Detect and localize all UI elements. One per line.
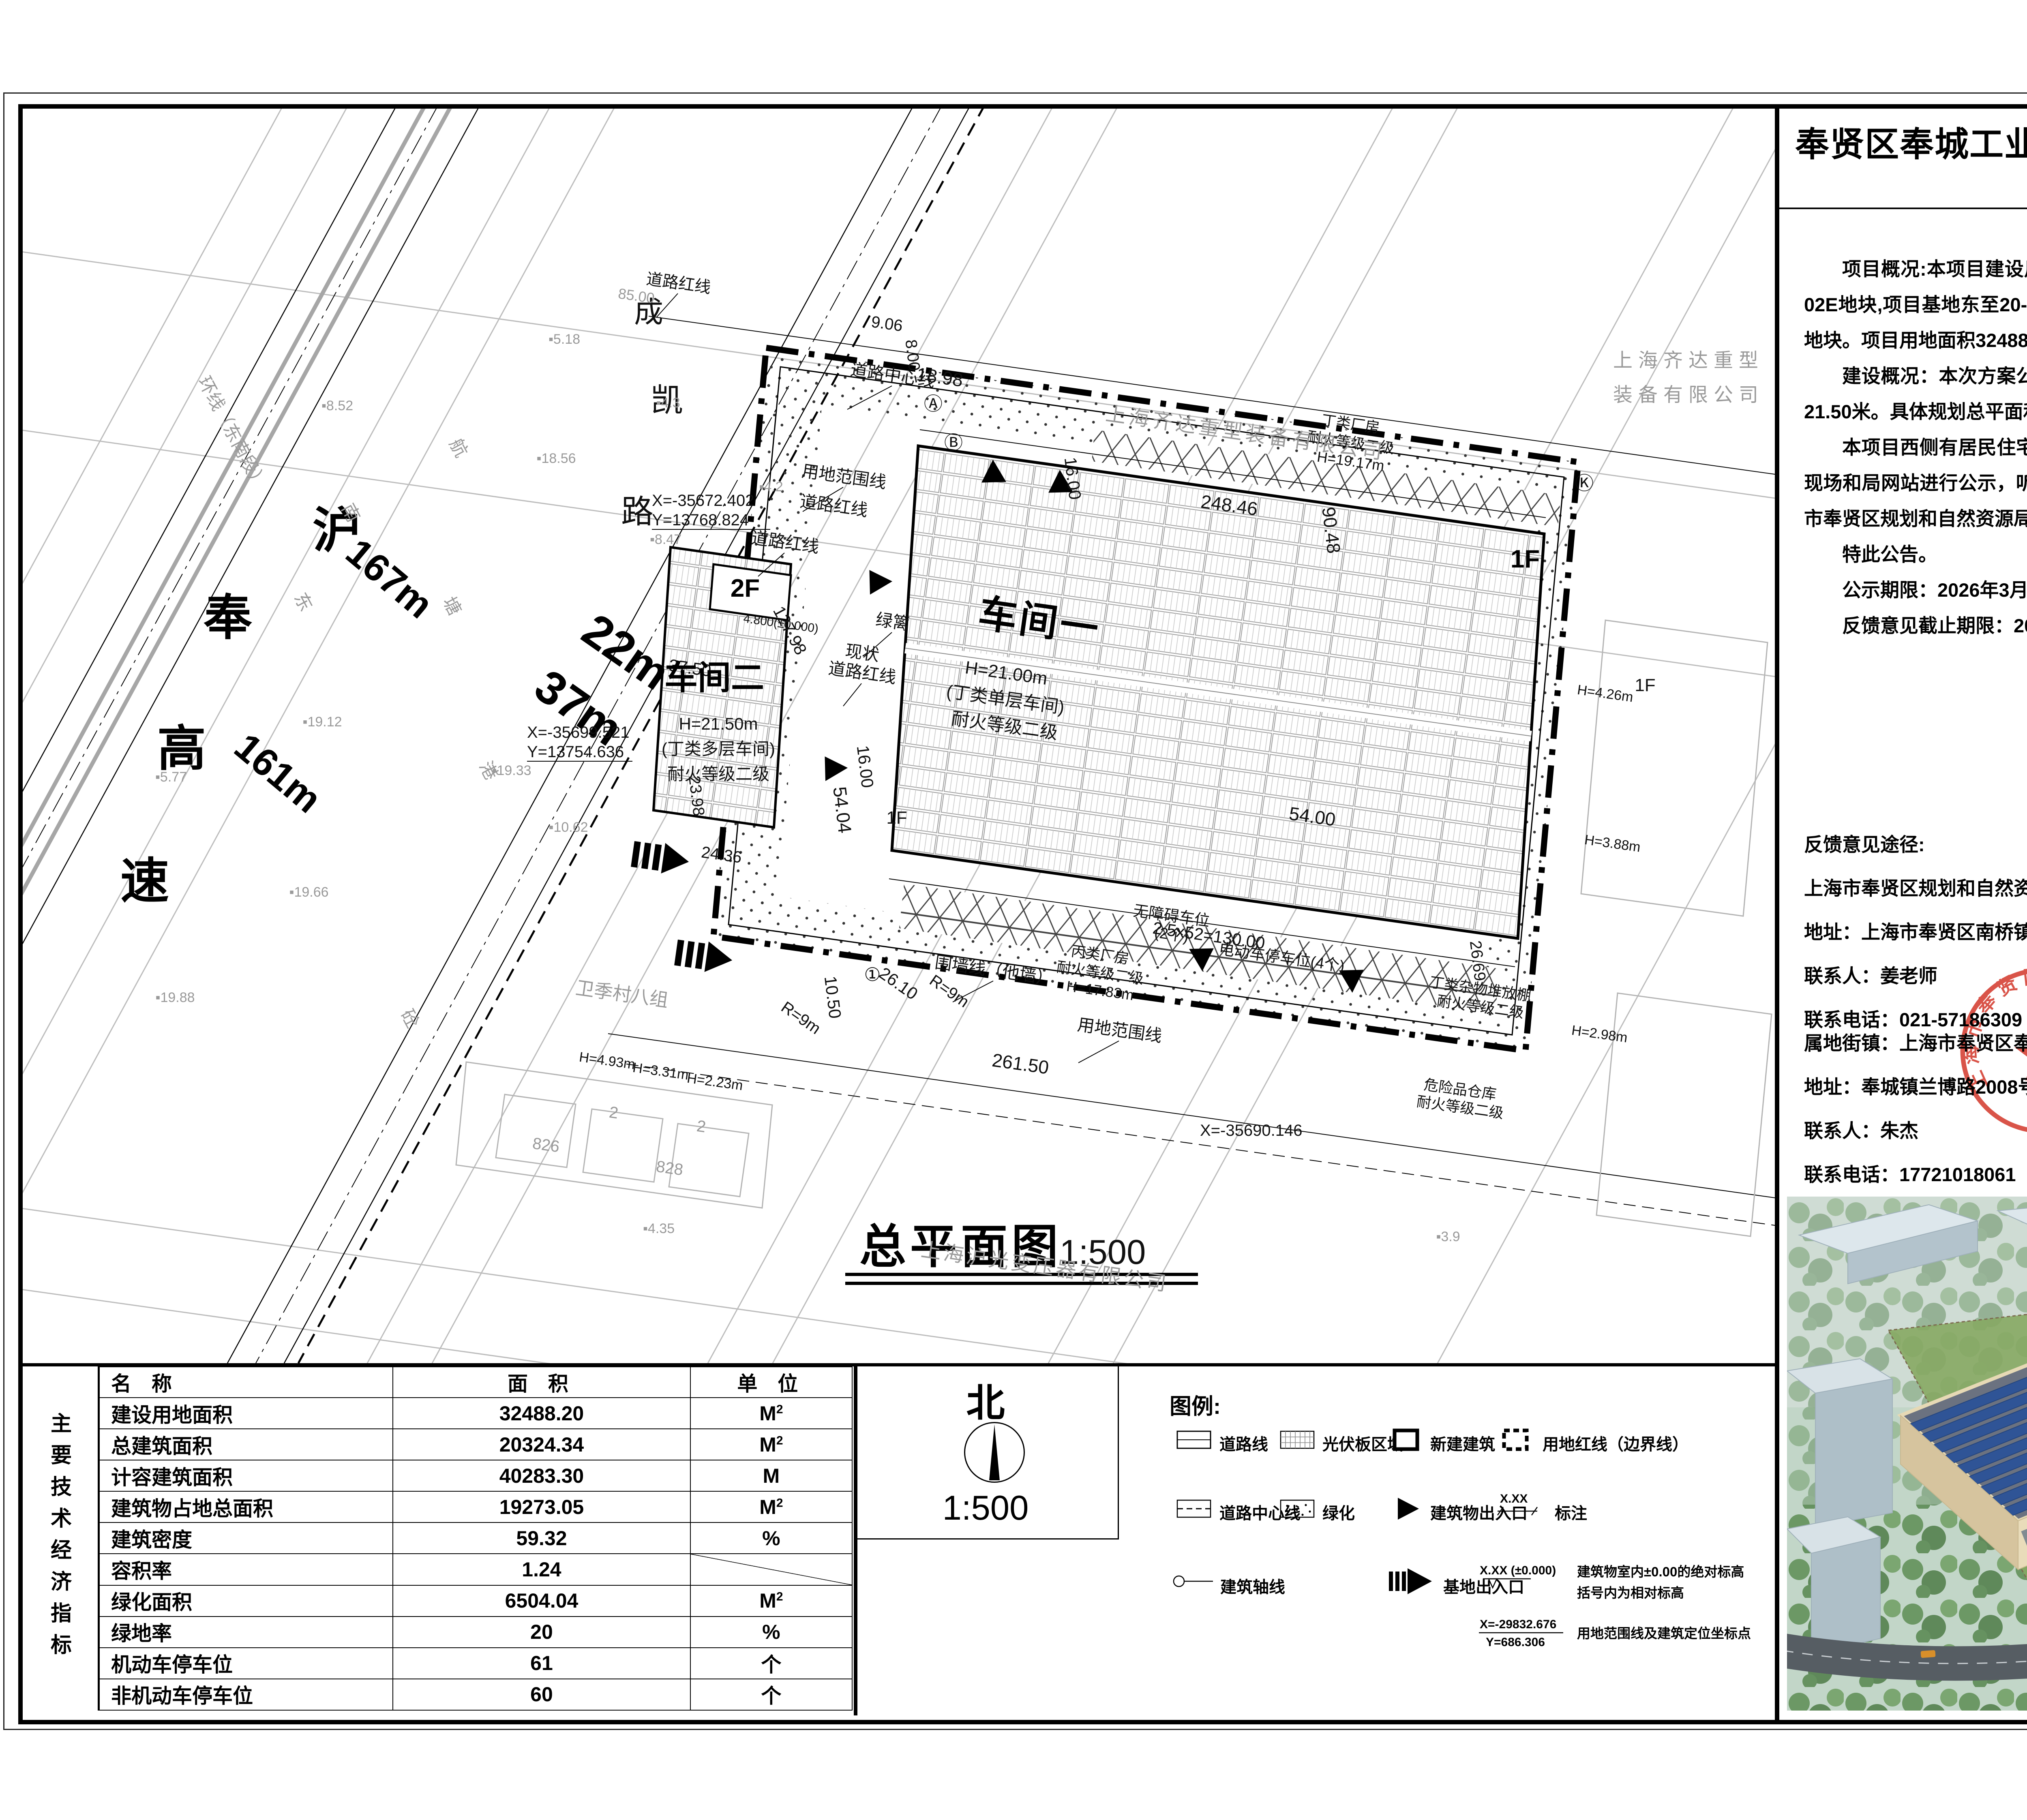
plan-label: 2 — [696, 1117, 707, 1136]
dim-symbol-icon — [1495, 1504, 1540, 1518]
compass-cell-bottomline — [854, 1538, 1119, 1540]
plan-label: X=-35690.146 — [1200, 1122, 1302, 1139]
paragraph-construction: 建设概况：本次方案公示单体为两栋厂房，分别为车间一及车间二。最高单体高度21.5… — [1804, 358, 2027, 430]
legend-note1b: 括号内为相对标高 — [1577, 1582, 1684, 1602]
table-row: 机动车停车位61个 — [99, 1648, 852, 1679]
plan-label: H=2.98m — [1571, 1023, 1628, 1046]
table-row: 绿地率20% — [99, 1617, 852, 1648]
plan-label: ▪19.66 — [289, 884, 328, 900]
plan-label: ▪5.77 — [155, 769, 187, 785]
plan-label: Y=13754.636 — [527, 743, 624, 761]
table-cell: 59.32 — [393, 1522, 690, 1554]
legend-heading: 图例: — [1170, 1388, 1221, 1420]
plan-label: 用地范围线 — [1076, 1015, 1163, 1046]
table-cell: 20 — [393, 1617, 690, 1648]
plan-label: R=9m — [926, 971, 973, 1011]
table-cell: M2 — [690, 1585, 852, 1617]
table-header-row: 名 称 面 积 单 位 — [99, 1367, 852, 1398]
issuing-authority: 上海市奉贤区规划和自然资源局 二零二六年三月十九日 — [1804, 706, 2027, 794]
plan-label: 速 — [120, 854, 169, 908]
page-title-line1: 奉贤区奉城工业园区南区FXS2-0103单元20-02E地块建设项目 — [1788, 122, 2027, 212]
announcement-body: 项目概况:本项目建设用地位于上海市奉贤区奉城工业园区南区FXS2-0103单元2… — [1804, 251, 2027, 644]
feedback-address: 地址：上海市奉贤区南桥镇南亭公路1号房地大厦 — [1804, 910, 2027, 954]
plan-label: 奉 — [204, 591, 253, 645]
plan-label: 航 — [446, 435, 471, 460]
plan-label: ▪18.56 — [536, 451, 576, 466]
plan-label: ▪4.3 — [656, 395, 680, 411]
plan-label: 16.00 — [853, 744, 877, 789]
table-cell: M2 — [690, 1398, 852, 1429]
table-cell: 绿地率 — [99, 1617, 393, 1648]
plan-label: 砼 — [397, 1006, 423, 1031]
elevation-symbol: X.XX (±0.000) — [1480, 1564, 1556, 1578]
plan-label: 卫季村八组 — [574, 977, 670, 1011]
table-row: 总建筑面积20324.34M2 — [99, 1429, 852, 1460]
paragraph-notice: 特此公告。 — [1804, 537, 2027, 572]
axis-line-icon — [1171, 1571, 1215, 1592]
north-arrow-icon — [964, 1422, 1025, 1483]
new-building-icon — [1391, 1427, 1423, 1452]
table-cell: 60 — [393, 1679, 690, 1710]
plan-label: 1F — [1635, 675, 1655, 695]
dim-symbol: X.XX — [1500, 1492, 1528, 1506]
plan-label: 绿篱 — [874, 610, 911, 634]
official-stamp-town-government: 上海市奉贤区奉城镇人民政府 — [1956, 964, 2027, 1138]
plan-label: 161m — [226, 725, 329, 821]
feedback-heading: 反馈意见途径: — [1804, 823, 2027, 867]
plan-label: 10.50 — [821, 975, 845, 1019]
plan-label: ▪8.47 — [650, 532, 681, 547]
compass-scale-label: 1:500 — [854, 1488, 1117, 1528]
plan-label: ▪19.88 — [155, 990, 195, 1005]
table-cell: 绿化面积 — [99, 1585, 393, 1617]
legend-axis-label: 建筑轴线 — [1220, 1574, 1285, 1597]
plan-label: 54.04 — [829, 786, 856, 835]
site-plan-drawing: 总平面图1:500沪167m奉高161m速成凯路22m37m248.46261.… — [23, 109, 1775, 1363]
plan-label: 261.50 — [991, 1049, 1050, 1078]
paragraph-overview: 项目概况:本项目建设用地位于上海市奉贤区奉城工业园区南区FXS2-0103单元2… — [1804, 251, 2027, 358]
plan-label: 826 — [531, 1135, 561, 1156]
plan-label: H=2.23m — [686, 1071, 744, 1094]
plan-label: (丁类多层车间) — [662, 739, 775, 758]
table-cell: 总建筑面积 — [99, 1429, 393, 1460]
legend-dim-label: 标注 — [1555, 1500, 1587, 1524]
plan-label: 耐火等级二级 — [667, 764, 769, 784]
plan-label: ▪3.9 — [1436, 1229, 1460, 1244]
table-cell: M — [690, 1460, 852, 1491]
table-cell: M2 — [690, 1491, 852, 1522]
table-cell: 建筑密度 — [99, 1522, 393, 1554]
plan-label: 道路红线 — [827, 659, 898, 687]
plan-label: H=21.50m — [679, 714, 758, 733]
plan-label: 26.10 — [876, 964, 921, 1004]
table-cell: 1.24 — [393, 1554, 690, 1585]
pv-area-icon — [1279, 1428, 1316, 1452]
table-cell: % — [690, 1522, 852, 1554]
plan-label: 1F — [1511, 545, 1540, 573]
project-3d-rendering — [1787, 1197, 2027, 1711]
legend-redline-label: 用地红线（边界线） — [1543, 1431, 1688, 1455]
plan-label: Y=13768.824 — [652, 511, 749, 529]
plan-label: 828 — [655, 1158, 684, 1179]
plan-label: ▪5.18 — [549, 332, 580, 347]
table-row: 绿化面积6504.04M2 — [99, 1585, 852, 1617]
feedback-deadline: 反馈意见截止期限：2026年4月4日 — [1804, 608, 2027, 644]
plan-label: X=-35672.402 — [652, 492, 754, 510]
table-cell: 计容建筑面积 — [99, 1460, 393, 1491]
plan-label: ▪4.35 — [643, 1221, 675, 1236]
legend-road-label: 道路线 — [1219, 1431, 1268, 1455]
paragraph-publicity: 本项目西侧有居民住宅，现根据《上海市建设工程设计方案规划公示规定》在基地现场和局… — [1804, 430, 2027, 537]
table-cell: 20324.34 — [393, 1429, 690, 1460]
plan-label: 路 — [621, 494, 654, 530]
table-cell: 40283.30 — [393, 1460, 690, 1491]
legend-note1a: 建筑物室内±0.00的绝对标高 — [1577, 1561, 1744, 1580]
plan-label: 车间二 — [664, 659, 764, 696]
plan-label: H=3.31m — [632, 1060, 690, 1083]
building-entrance-icon — [1394, 1495, 1422, 1522]
plan-label: X=-35699.521 — [527, 724, 629, 741]
publicity-period: 公示期限：2026年3月19日至2026年3月28日 — [1804, 572, 2027, 608]
redline-icon — [1500, 1427, 1532, 1452]
table-cell: 个 — [690, 1679, 852, 1710]
plan-label: 塘 — [439, 593, 465, 619]
table-cell: % — [690, 1617, 852, 1648]
township-phone: 联系电话：17721018061 — [1804, 1153, 2027, 1197]
table-cell: 个 — [690, 1648, 852, 1679]
plan-label: 167m — [338, 531, 441, 627]
table-cell: M2 — [690, 1429, 852, 1460]
table-row: 建筑密度59.32% — [99, 1522, 852, 1554]
plan-label: 上海齐达重型 — [1613, 350, 1764, 371]
plan-label: Ⓚ — [1575, 473, 1594, 494]
plan-label: ① — [864, 964, 881, 985]
feedback-org: 上海市奉贤区规划和自然资源局 — [1804, 867, 2027, 910]
table-cell: 32488.20 — [393, 1398, 690, 1429]
greenery-icon — [1279, 1497, 1316, 1520]
panel-divider — [1775, 104, 1779, 1720]
announcement-sheet: { "colors":{"stamp_red":"#d43c2f","solar… — [0, 0, 2027, 1820]
plan-label: 装备有限公司 — [1613, 384, 1764, 406]
coord-symbol-y: Y=686.306 — [1486, 1636, 1545, 1649]
stamp2-text: 上海市奉贤区奉城镇人民政府 — [1956, 964, 2027, 1105]
elevation-symbol-icon — [1483, 1577, 1532, 1593]
plan-label: ▪19.33 — [492, 763, 531, 778]
table-cell: 容积率 — [99, 1554, 393, 1585]
authority-name: 上海市奉贤区规划和自然资源局 — [1804, 706, 2027, 750]
plan-label: R=9m — [778, 998, 824, 1038]
plan-label: H=4.26m — [1576, 682, 1634, 705]
indicator-side-label: 主要技术经济指标 — [21, 1366, 99, 1711]
table-row: 建筑物占地总面积19273.05M2 — [99, 1491, 852, 1522]
legend-green-label: 绿化 — [1322, 1500, 1355, 1524]
table-cell: 建筑物占地总面积 — [99, 1491, 393, 1522]
table-cell — [690, 1554, 852, 1585]
col-header-area: 面 积 — [393, 1367, 690, 1398]
table-cell: 61 — [393, 1648, 690, 1679]
table-cell: 机动车停车位 — [99, 1648, 393, 1679]
plan-label: ▪8.52 — [321, 398, 353, 413]
svg-text:上海市奉贤区奉城镇人民政府: 上海市奉贤区奉城镇人民政府 — [1956, 964, 2027, 1105]
plan-label: ▪19.12 — [302, 714, 342, 730]
issue-date: 二零二六年三月十九日 — [1804, 750, 2027, 794]
col-header-unit: 单 位 — [690, 1367, 852, 1398]
plan-label: 2F — [731, 574, 760, 602]
table-row: 容积率1.24 — [99, 1554, 852, 1585]
indicator-table: 主要技术经济指标 名 称 面 积 单 位 建设用地面积32488.20M2总建筑… — [21, 1366, 853, 1711]
table-row: 非机动车停车位60个 — [99, 1679, 852, 1710]
plan-label: Ⓑ — [944, 432, 963, 453]
table-cell: 建设用地面积 — [99, 1398, 393, 1429]
compass-cell-divider — [1118, 1366, 1119, 1540]
legend-note2: 用地范围线及建筑定位坐标点 — [1577, 1623, 1751, 1642]
col-header-name: 名 称 — [99, 1367, 393, 1398]
plan-label: ▪10.62 — [549, 820, 588, 835]
table-row: 建设用地面积32488.20M2 — [99, 1398, 852, 1429]
plan-label: 1F — [886, 808, 907, 828]
plan-label: H=4.93m — [578, 1049, 636, 1073]
plan-label: 9.06 — [870, 313, 904, 335]
plan-label: 高 — [157, 722, 206, 776]
coord-symbol-line — [1479, 1632, 1564, 1634]
legend-panel: 图例: 道路线 光伏板区域 新建建筑 用地红线（边界线） 道路中心线 绿化 建筑… — [1123, 1363, 1772, 1715]
table-cell: 非机动车停车位 — [99, 1679, 393, 1710]
coord-symbol-x: X=-29832.676 — [1480, 1618, 1556, 1632]
plan-label: Ⓐ — [924, 393, 943, 414]
road-centerline-icon — [1176, 1497, 1213, 1520]
plan-label: ▪4.2 — [759, 479, 783, 495]
legend-newbuild-label: 新建建筑 — [1430, 1431, 1495, 1455]
plan-label: H=3.88m — [1583, 832, 1641, 855]
plan-label: 东 — [290, 589, 316, 615]
table-cell: 19273.05 — [393, 1491, 690, 1522]
page-title: 奉贤区奉城工业园区南区FXS2-0103单元20-02E地块建设项目 设计方案公… — [1788, 122, 2027, 258]
table-row: 计容建筑面积40283.30M — [99, 1460, 852, 1491]
road-line-icon — [1176, 1428, 1213, 1452]
site-entrance-icon — [1386, 1566, 1435, 1597]
table-cell: 6504.04 — [393, 1585, 690, 1617]
compass-north-label: 北 — [854, 1372, 1117, 1428]
plan-label: 2 — [608, 1103, 619, 1122]
